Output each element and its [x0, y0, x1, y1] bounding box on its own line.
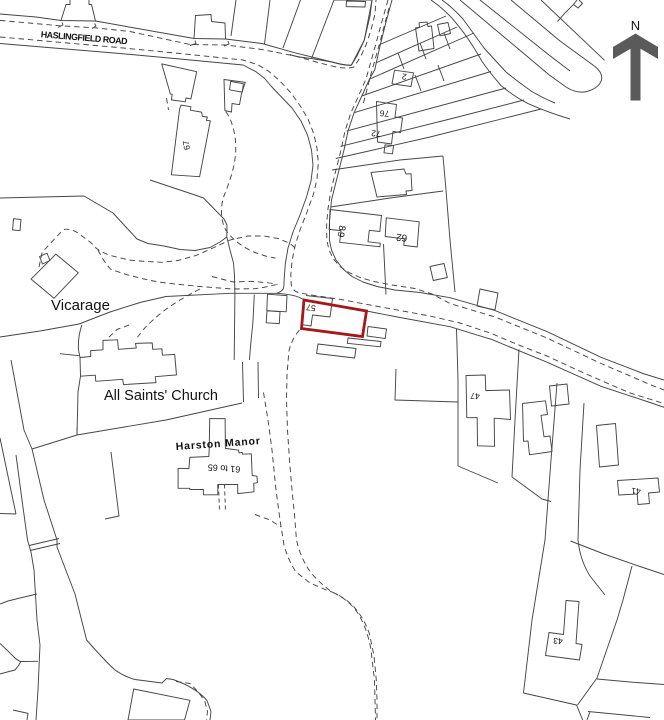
- svg-text:89: 89: [334, 224, 347, 239]
- svg-text:72: 72: [371, 128, 382, 139]
- svg-text:62: 62: [395, 231, 408, 243]
- svg-text:All Saints' Church: All Saints' Church: [104, 388, 218, 404]
- svg-text:N: N: [631, 18, 640, 33]
- svg-text:47: 47: [470, 391, 481, 402]
- svg-text:67: 67: [181, 140, 192, 151]
- svg-text:43: 43: [553, 636, 564, 647]
- svg-text:57: 57: [305, 302, 316, 313]
- svg-text:Harston Manor: Harston Manor: [175, 435, 261, 453]
- svg-text:Vicarage: Vicarage: [51, 297, 110, 314]
- svg-text:2: 2: [401, 71, 407, 82]
- svg-text:HASLINGFIELD ROAD: HASLINGFIELD ROAD: [40, 29, 128, 46]
- svg-text:41: 41: [631, 486, 641, 497]
- svg-text:61 to 65: 61 to 65: [207, 462, 240, 474]
- svg-text:76: 76: [379, 108, 390, 119]
